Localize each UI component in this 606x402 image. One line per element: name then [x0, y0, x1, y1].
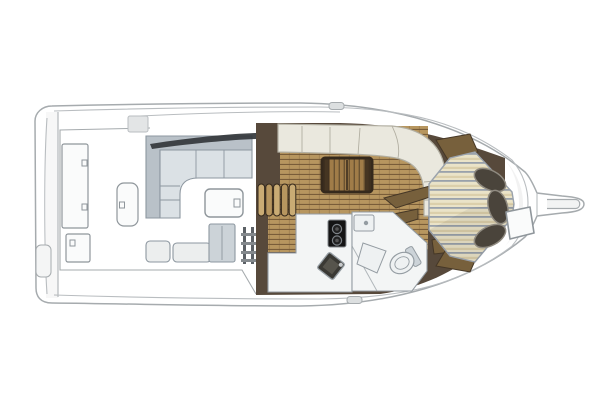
anchor-roller-slot	[547, 200, 580, 209]
deck-hatch-large	[62, 144, 88, 228]
cockpit-table	[205, 189, 243, 217]
deck-cleat	[329, 103, 344, 110]
aft-bench	[146, 241, 170, 262]
engine-hatch	[117, 183, 138, 226]
aft-bench	[173, 243, 211, 262]
stove	[328, 220, 346, 247]
yacht-floorplan	[0, 0, 606, 402]
salon-table	[322, 158, 372, 192]
foredeck-hatch	[506, 207, 534, 239]
bulkhead-column	[256, 123, 280, 187]
foredeck	[506, 207, 534, 239]
hardtop-support	[128, 116, 148, 132]
companionway-steps	[258, 184, 296, 216]
faucet-icon	[364, 221, 368, 225]
deck-hatch-small	[66, 234, 90, 262]
platform-step	[36, 245, 51, 277]
deck-cleat	[347, 297, 362, 304]
